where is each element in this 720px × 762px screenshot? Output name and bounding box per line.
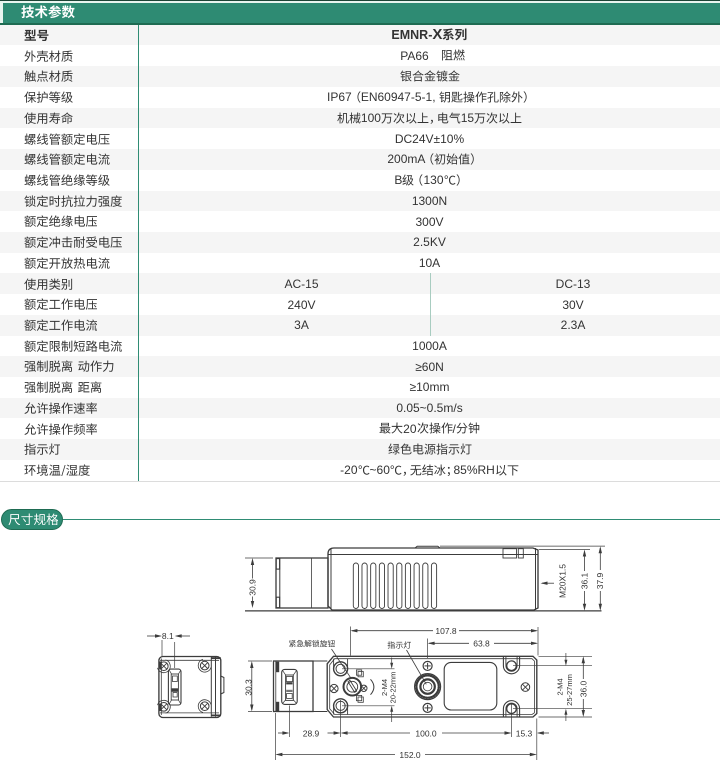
svg-text:107.8: 107.8 xyxy=(435,626,457,636)
svg-text:2-M4: 2-M4 xyxy=(556,678,565,695)
svg-text:152.0: 152.0 xyxy=(399,750,421,760)
svg-text:8.1: 8.1 xyxy=(162,631,174,641)
svg-text:28.9: 28.9 xyxy=(303,728,320,738)
svg-text:36.0: 36.0 xyxy=(579,680,589,697)
svg-text:30.3: 30.3 xyxy=(244,679,254,696)
svg-text:100.0: 100.0 xyxy=(415,728,437,738)
svg-text:M20X1.5: M20X1.5 xyxy=(558,564,568,598)
svg-text:15.3: 15.3 xyxy=(516,728,533,738)
svg-text:30.9: 30.9 xyxy=(248,579,258,596)
svg-text:63.8: 63.8 xyxy=(473,639,490,649)
svg-text:37.9: 37.9 xyxy=(595,572,605,589)
svg-text:25-27mm: 25-27mm xyxy=(565,674,574,706)
svg-text:36.1: 36.1 xyxy=(580,572,590,589)
svg-text:20-22mm: 20-22mm xyxy=(388,672,397,704)
